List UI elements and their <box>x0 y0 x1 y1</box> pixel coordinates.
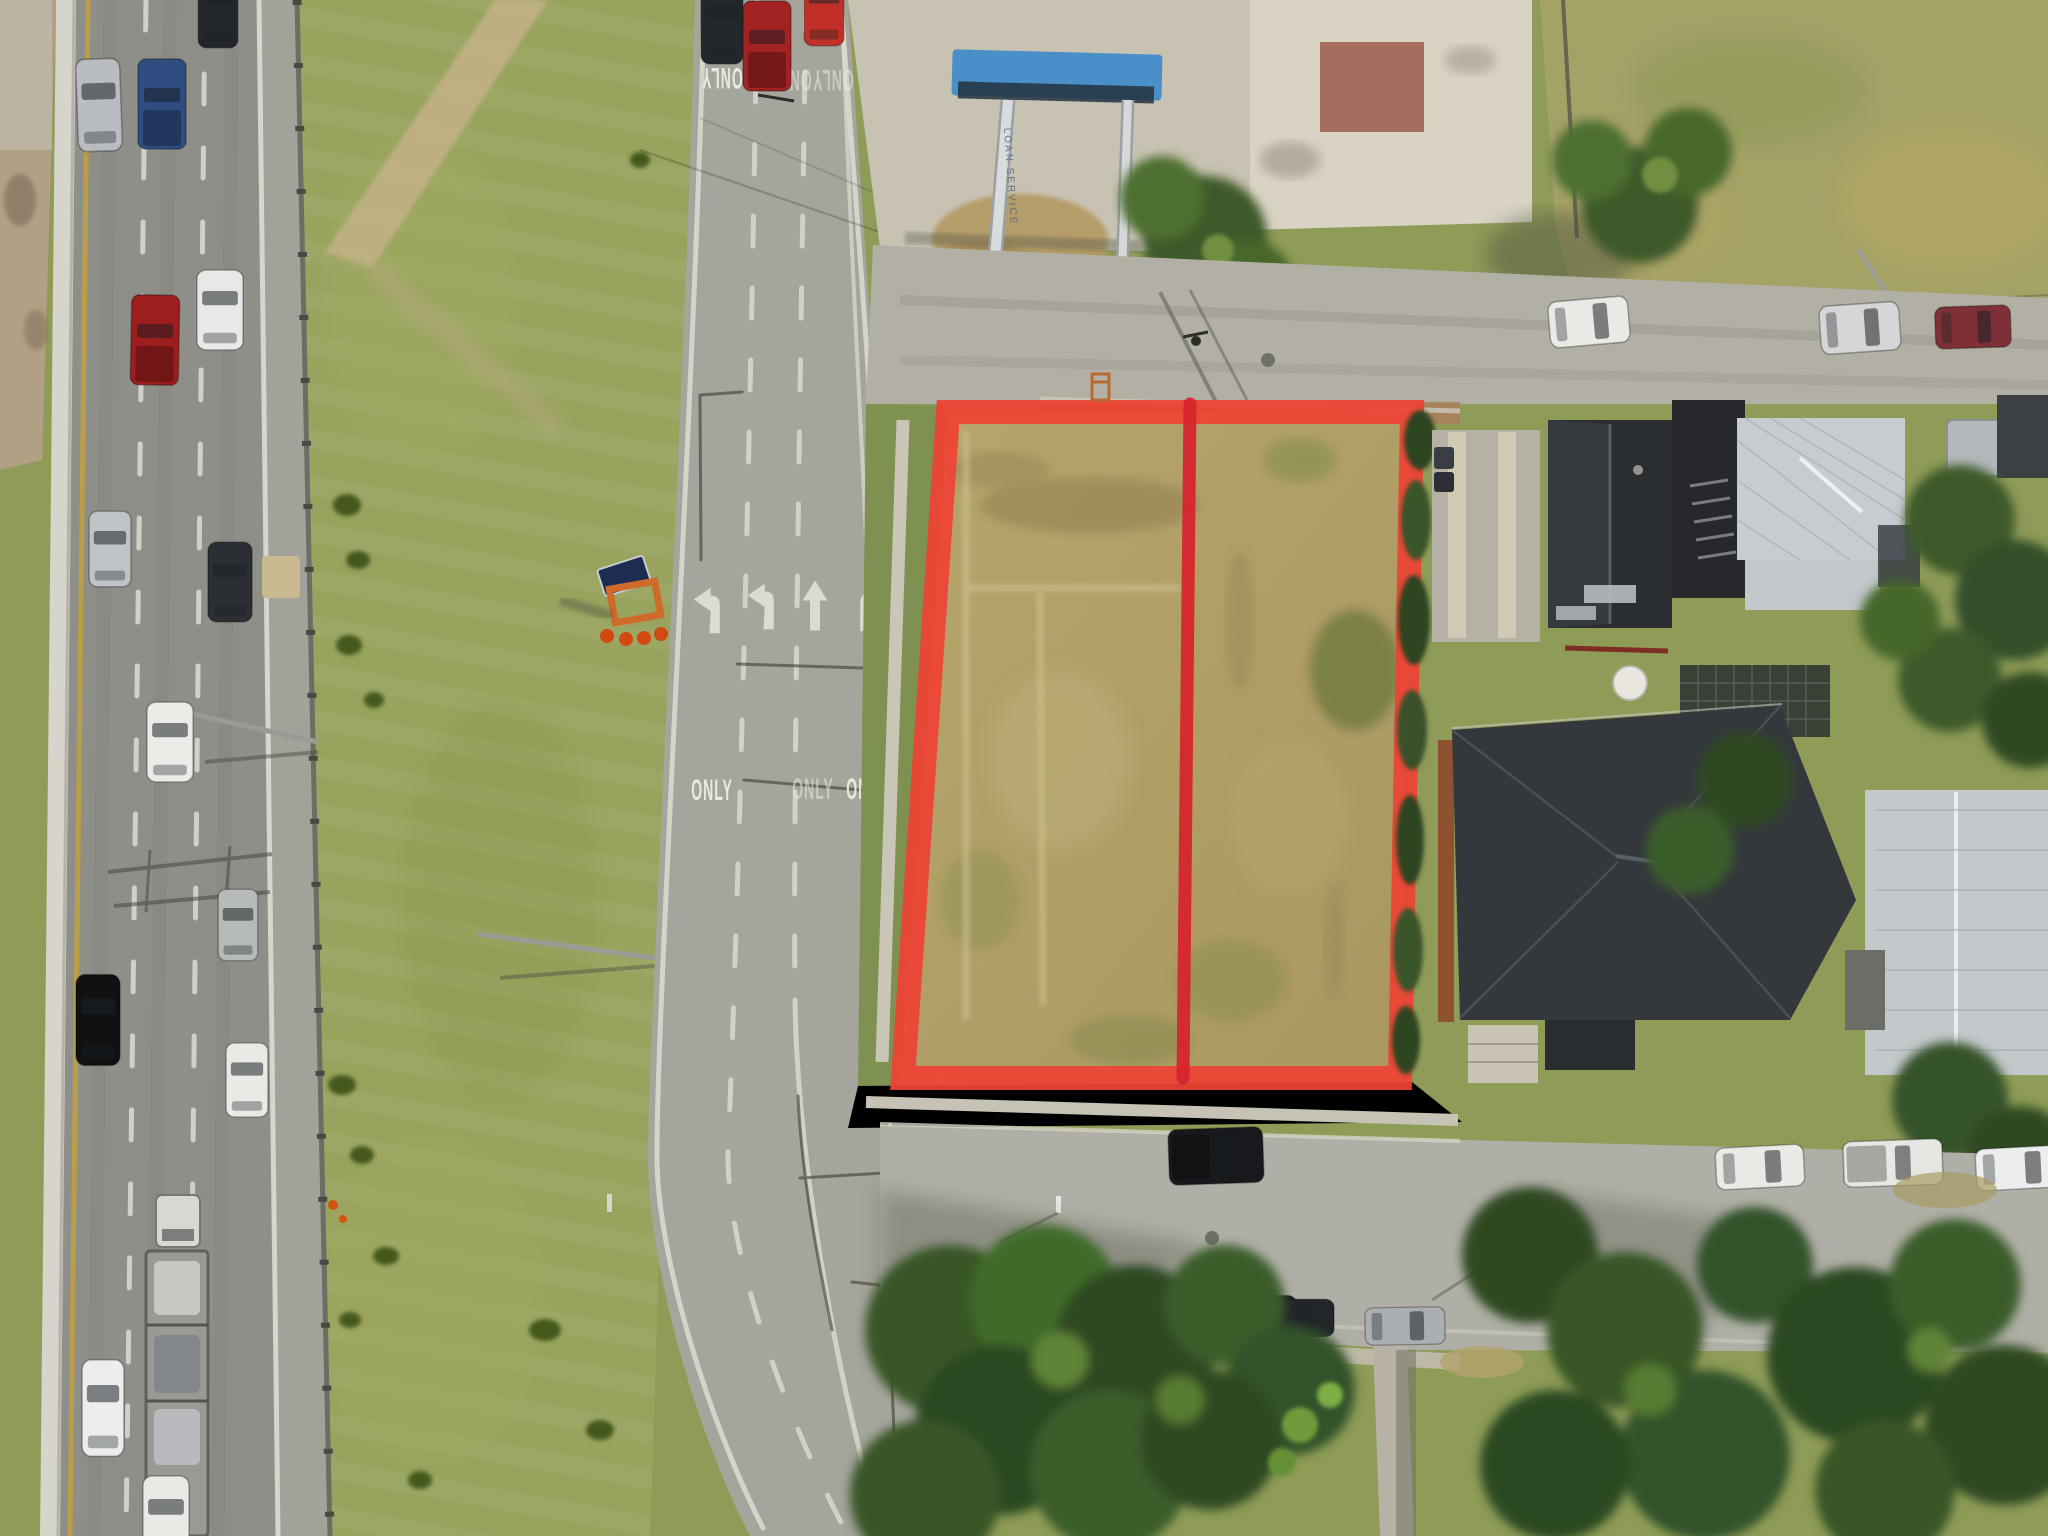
aerial-scene: ONLY ONLY ONLY ONLY ONLY ONLY <box>0 0 2048 1536</box>
green-patch <box>1175 940 1285 1020</box>
pale-patch <box>990 670 1130 850</box>
annex-roof <box>1672 400 1745 598</box>
green-patch <box>940 850 1020 950</box>
orange-barrel <box>654 627 668 641</box>
manhole <box>1261 353 1275 367</box>
tree-highlight <box>1156 1376 1204 1424</box>
driveway-shadow <box>1396 1350 1416 1536</box>
car-silver <box>218 889 258 960</box>
parked-truck-dark <box>1168 1127 1264 1185</box>
tree-canopy-blob <box>1860 580 1940 660</box>
slab-stain <box>1444 46 1496 74</box>
traffic-cone <box>339 1215 347 1223</box>
awning <box>1584 585 1636 603</box>
car-dark <box>701 0 743 64</box>
house-dark-annex <box>1672 400 1745 598</box>
small-sign-post <box>607 1194 612 1212</box>
lamp-pole-pad <box>262 556 300 598</box>
truck-blue <box>138 59 186 149</box>
green-patch <box>1310 610 1400 730</box>
grass-gap-tan <box>1440 1346 1524 1378</box>
rust-wall <box>1438 740 1454 1022</box>
pale-patch <box>1230 740 1350 900</box>
car-dark <box>198 0 238 48</box>
chimney <box>1633 465 1643 475</box>
green-patch <box>1265 438 1335 482</box>
trash-bin <box>1434 472 1454 492</box>
vacant-lot <box>848 374 1462 1137</box>
parked-car-white <box>1715 1144 1805 1190</box>
parked-car-silver <box>1819 301 1902 355</box>
car-white <box>143 1476 189 1536</box>
utility-pole <box>1191 336 1201 346</box>
orange-barrel <box>637 631 651 645</box>
car-white <box>82 1360 124 1457</box>
car-white <box>147 702 193 782</box>
car-silver <box>75 58 122 152</box>
house-silver-gable <box>1845 790 2048 1075</box>
red-fence-rail <box>1565 648 1668 651</box>
car-red <box>804 0 844 46</box>
lot-divider-red <box>1183 404 1190 1078</box>
only-marking: ONLY <box>812 64 854 97</box>
car-silver <box>89 511 131 587</box>
tree-highlight <box>1624 1364 1676 1416</box>
parked-car-silver <box>1365 1307 1445 1346</box>
tree-canopy-blob <box>1120 156 1204 240</box>
suv-black <box>76 975 120 1066</box>
only-marking: ONLY <box>701 62 743 95</box>
highway <box>40 0 347 1536</box>
house-dark-gable <box>1548 420 1672 628</box>
slab-stain <box>1260 142 1320 178</box>
neighbor-roof-corner <box>1997 395 2048 478</box>
dirt-streak <box>1226 550 1254 690</box>
ac-unit <box>1845 950 1885 1030</box>
car-white <box>197 270 243 350</box>
manhole <box>1205 1231 1219 1245</box>
tree-canopy-blob <box>1646 806 1734 894</box>
trash-bin <box>1434 447 1454 469</box>
aerial-drone-photo: ONLY ONLY ONLY ONLY ONLY ONLY <box>0 0 2048 1536</box>
driveway-strip <box>1498 432 1516 638</box>
tree-canopy-blob <box>1552 120 1632 200</box>
parked-car-white <box>1547 296 1631 349</box>
orange-barrel <box>619 632 633 646</box>
porch-dark <box>1545 1020 1635 1070</box>
porch-roof <box>1745 560 1880 610</box>
orange-barrel <box>600 629 614 643</box>
tree-highlight <box>1032 1332 1088 1388</box>
tree-canopy-blob <box>1889 1219 2021 1351</box>
only-marking: ONLY <box>792 772 834 805</box>
red-roof-patch <box>1320 42 1424 132</box>
truck-red <box>743 1 791 91</box>
satellite-dish <box>1613 666 1647 700</box>
left-concrete-top <box>0 0 52 150</box>
green-patch <box>1070 1015 1190 1065</box>
grass-mottle <box>320 1140 540 1460</box>
streetlight-pole-top <box>1056 1196 1061 1213</box>
tree-highlight <box>1642 157 1678 193</box>
dirt-pothole <box>4 174 36 226</box>
traffic-cone <box>328 1200 338 1210</box>
car-white <box>226 1043 268 1117</box>
tree-highlight <box>1908 1328 1952 1372</box>
dirt-pothole <box>24 310 48 350</box>
dirt-streak <box>1325 880 1345 1000</box>
tree-canopy-blob <box>1480 1390 1630 1536</box>
awning <box>1556 606 1596 620</box>
front-steps <box>1468 1025 1538 1083</box>
car-dark <box>208 542 252 622</box>
truck-red <box>130 295 180 386</box>
grass-mottle <box>400 700 600 1100</box>
parked-car-maroon <box>1934 305 2011 349</box>
grass-gap-tan <box>1893 1172 1997 1208</box>
only-marking: ONLY <box>691 773 733 806</box>
